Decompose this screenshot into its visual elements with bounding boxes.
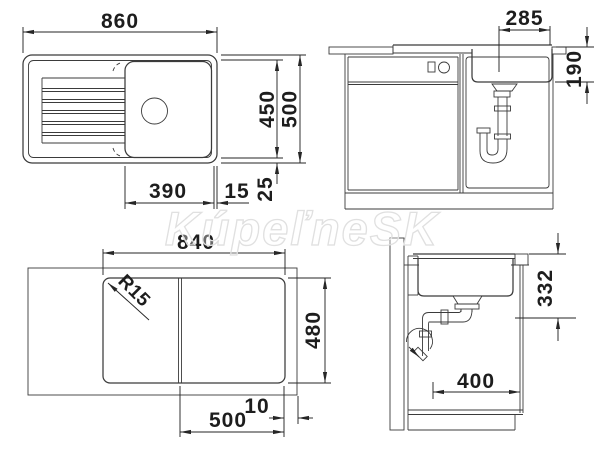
sink-base-inner-panel (466, 57, 549, 188)
handle-square-icon (428, 62, 435, 72)
dim-label-190: 190 (563, 50, 586, 88)
sink-front-section-view: 285 190 (329, 7, 594, 209)
dim-label-500: 500 (279, 90, 302, 128)
dim-label-cutout-500: 500 (209, 409, 247, 432)
cutout-plan-view: 840 R15 480 500 10 (28, 231, 331, 437)
bowl-corner-mark-top (113, 63, 122, 72)
worktop-outline (28, 268, 297, 395)
wall-batten (408, 256, 418, 295)
drawing-canvas: 860 450 500 390 15 25 (0, 0, 600, 454)
handle-circle-icon (439, 62, 450, 73)
dim-label-285: 285 (505, 7, 543, 30)
cabinet-drawer-and-door (348, 57, 458, 190)
sink-top-view: 860 450 500 390 15 25 (23, 10, 306, 209)
watermark-text: KúpeľneSK (165, 202, 440, 255)
drain-flow-arrow (409, 347, 419, 357)
drain-hole (142, 98, 168, 124)
siphon-side (406, 296, 482, 361)
bowl-section (472, 49, 552, 82)
dim-label-15: 15 (224, 180, 249, 203)
sink-outer-edge (23, 55, 217, 163)
dim-label-450: 450 (256, 90, 279, 128)
dim-label-25: 25 (254, 176, 277, 201)
dim-label-10: 10 (244, 395, 269, 418)
sink-technical-drawing-sheet: 860 450 500 390 15 25 (0, 0, 600, 454)
wall-hatch (390, 238, 404, 430)
siphon-front (477, 84, 517, 163)
bowl-side-section (418, 259, 513, 297)
dim-label-332: 332 (534, 269, 557, 307)
dim-label-r15: R15 (114, 271, 155, 312)
dim-label-860: 860 (101, 10, 139, 33)
dim-label-480: 480 (302, 311, 325, 349)
counter-front-hatch (515, 254, 528, 265)
dim-label-400: 400 (457, 370, 495, 393)
side-section-view: 400 332 (390, 233, 576, 430)
bowl-outline (125, 62, 212, 158)
dim-label-390: 390 (149, 180, 187, 203)
bowl-corner-mark-bottom (113, 148, 122, 157)
countertop-hatch-left (329, 47, 393, 54)
drainboard-grooves (42, 78, 125, 143)
